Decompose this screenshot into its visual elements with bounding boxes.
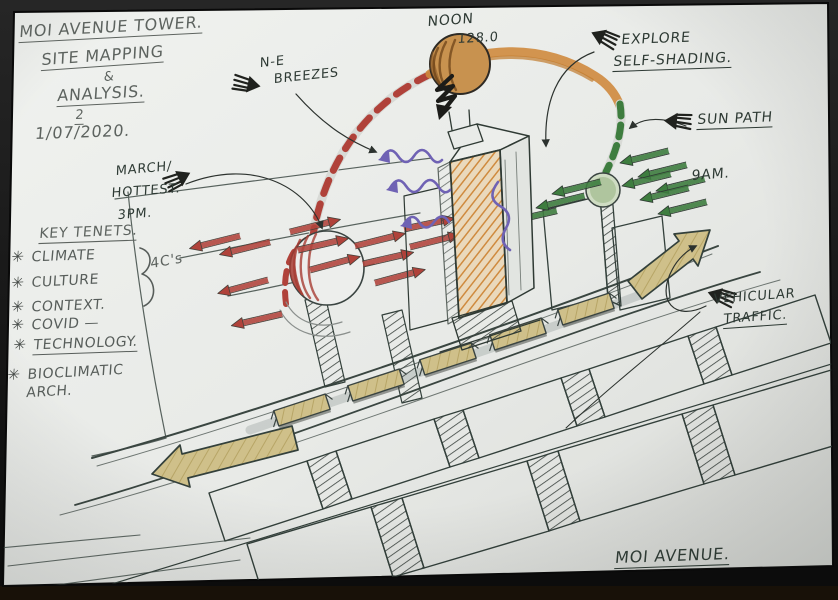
asterisk-bullet-icon: ✳ [11,300,25,316]
tenet-covid: ✳ COVID — [11,315,100,334]
tenet-label: CLIMATE [31,247,96,265]
noon-value: 128.0 [457,30,499,47]
asterisk-bullet-icon: ✳ [7,367,21,383]
tenet-climate: ✳ CLIMATE [11,247,96,266]
tenet-label: CONTEXT. [31,297,107,316]
moi-avenue-label: MOI AVENUE. [614,544,731,569]
noon-label: NOON [427,11,474,30]
tenet-context: ✳ CONTEXT. [11,297,107,316]
sketch-photo: MOI AVENUE TOWER. SITE MAPPING & ANALYSI… [0,0,838,600]
asterisk-bullet-icon: ✳ [13,338,27,354]
tenet-label: COVID — [31,315,100,333]
asterisk-bullet-icon: ✳ [11,318,25,334]
ne-breezes-line1: N-E [260,53,285,71]
sun-path-label: SUN PATH [696,109,773,130]
tower-front-face [450,150,507,318]
march-line3: 3PM. [117,206,152,224]
asterisk-bullet-icon: ✳ [11,275,25,291]
sun-morning [586,173,620,207]
tenet-label: BIOCLIMATIC ARCH. [26,361,146,402]
explore-line1: EXPLORE [621,30,692,48]
nine-am-label: 9AM. [691,165,730,184]
tenet-bioclimatic: ✳ BIOCLIMATIC ARCH. [6,361,146,403]
tenet-label: TECHNOLOGY. [33,334,139,356]
asterisk-bullet-icon: ✳ [11,250,25,266]
title-date: 1/07/2020. [34,121,131,143]
key-tenets-heading: KEY TENETS. [38,223,138,245]
